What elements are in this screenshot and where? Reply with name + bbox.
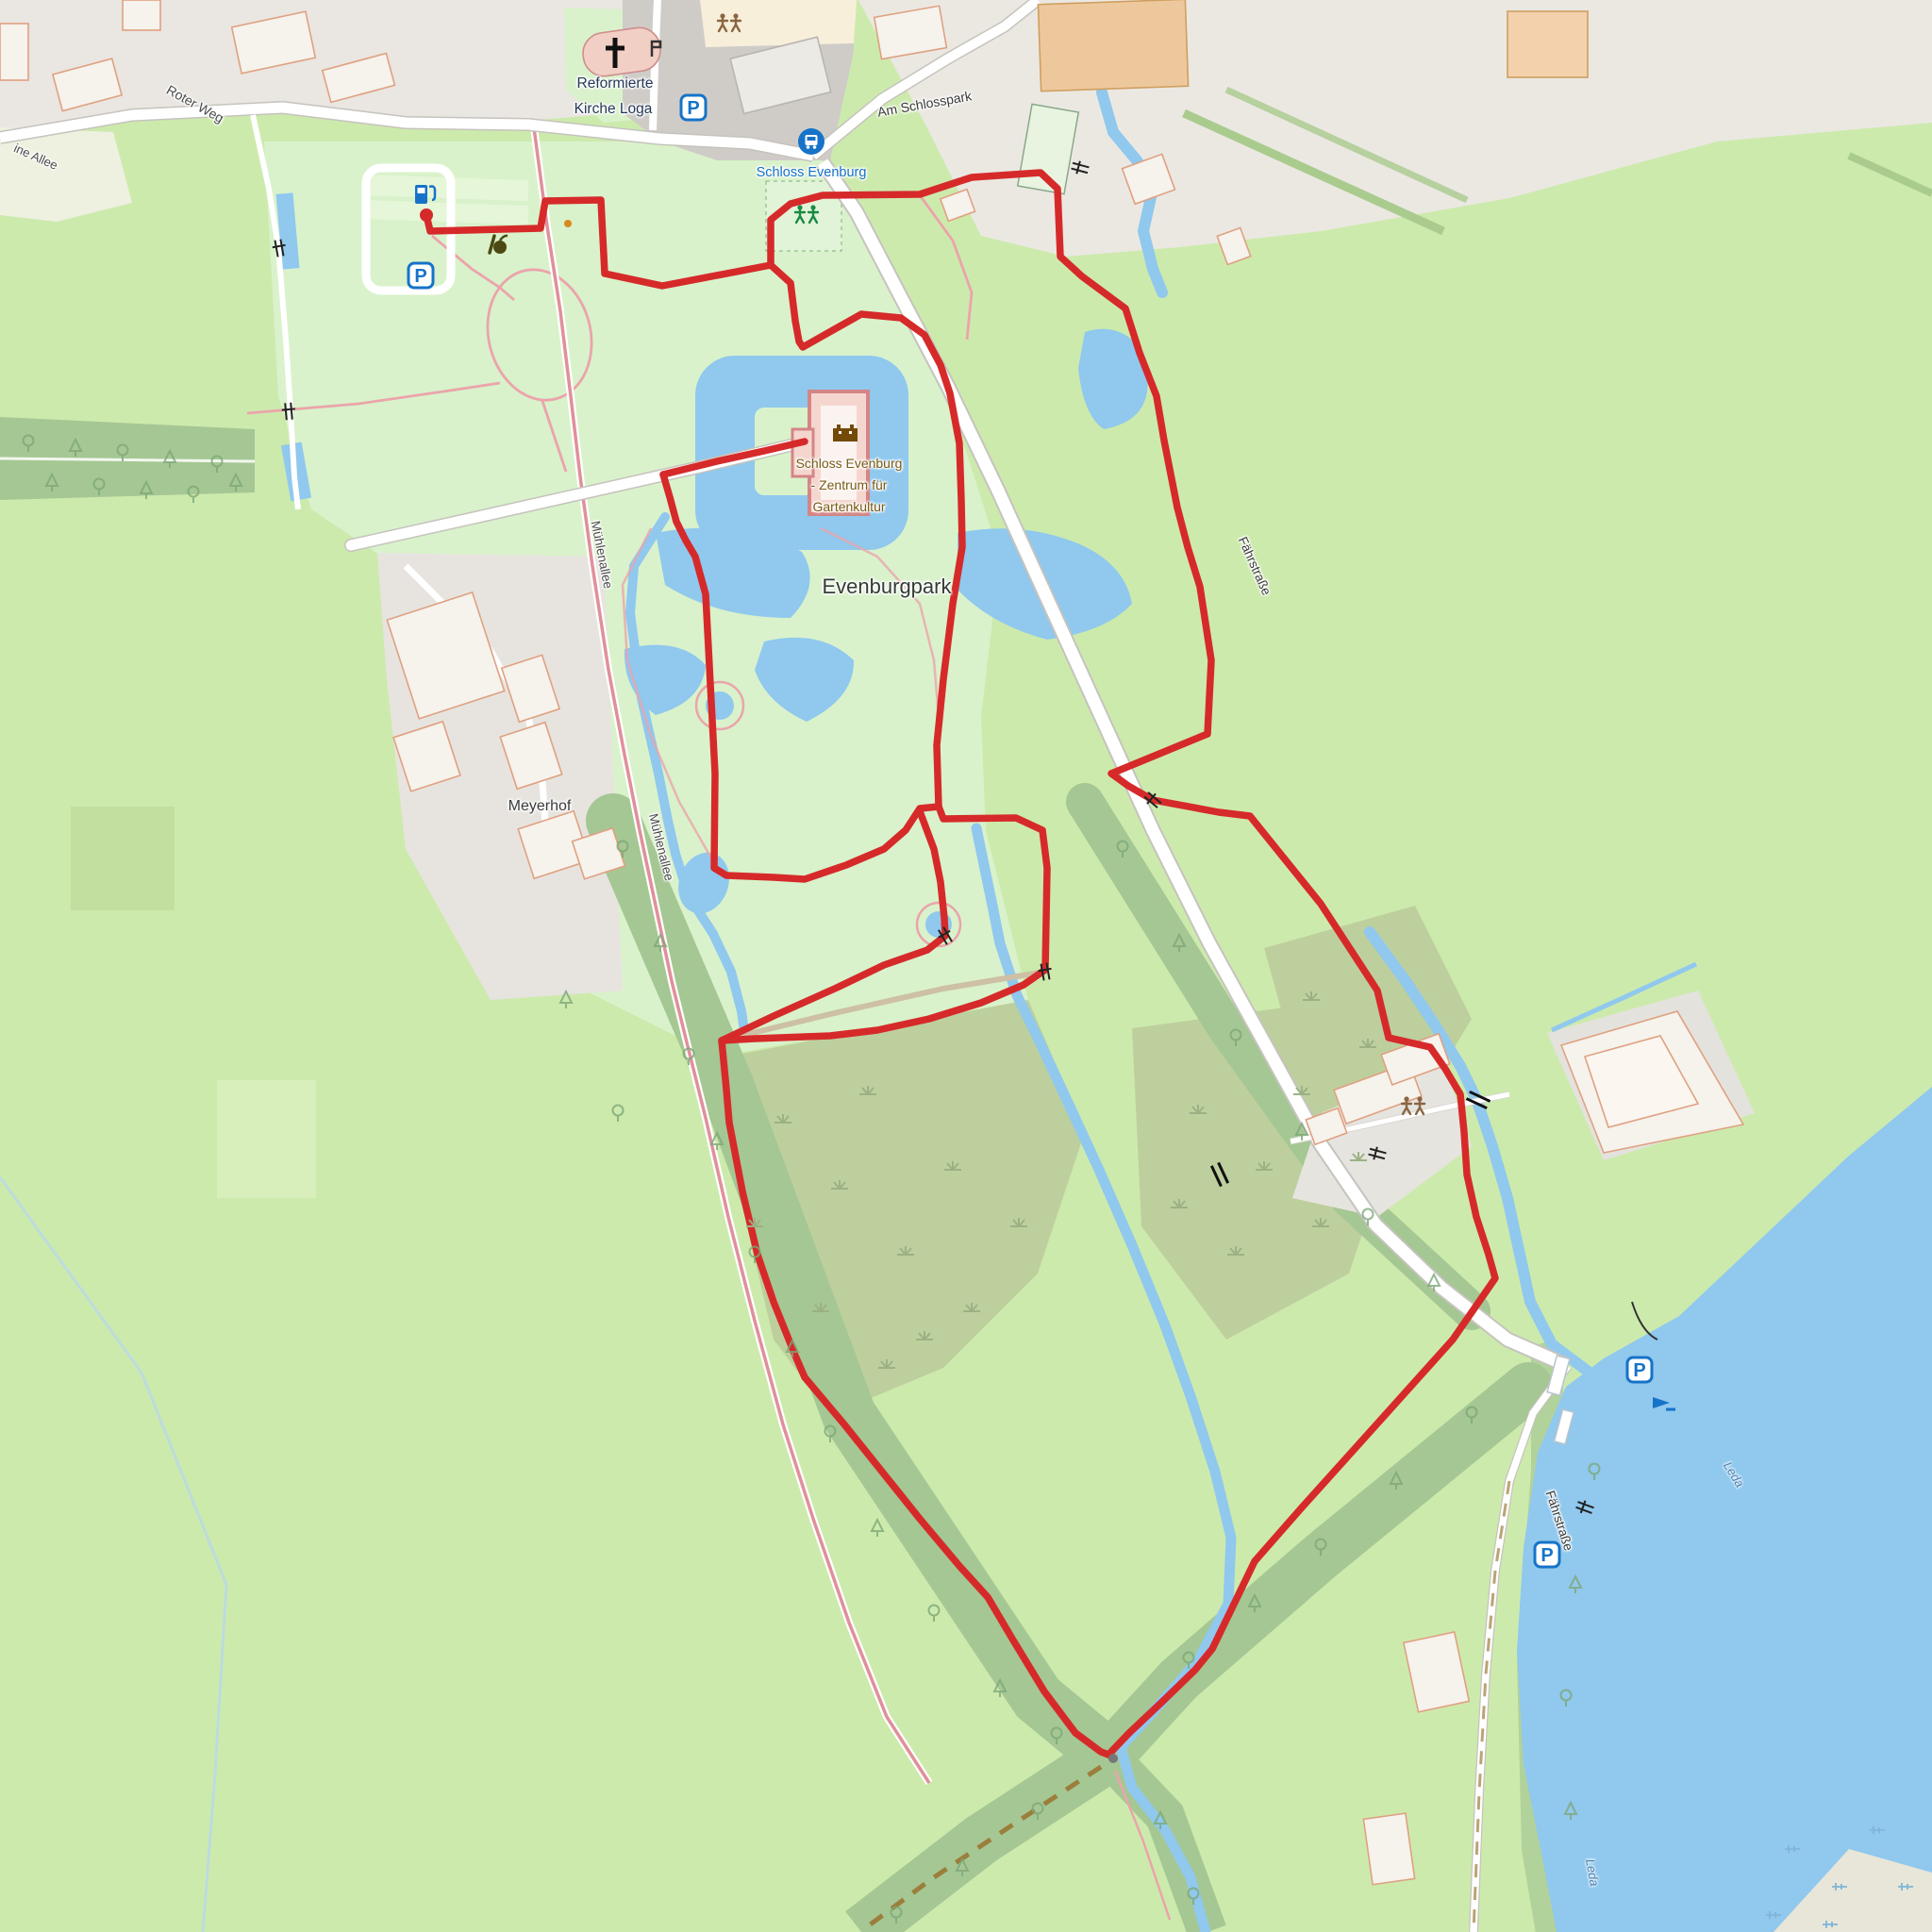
parking-icon: P — [681, 95, 706, 120]
svg-text:P: P — [1633, 1360, 1645, 1381]
map-viewport[interactable]: PPPP Roter Wegine AlleeReformierteKirche… — [0, 0, 1932, 1932]
parking-icon: P — [1535, 1542, 1559, 1567]
parking-icon: P — [1627, 1357, 1652, 1382]
route-end-dot — [1108, 1754, 1118, 1763]
map-canvas: PPPP — [0, 0, 1932, 1932]
route-start-dot — [420, 208, 433, 222]
svg-text:P: P — [1541, 1545, 1553, 1566]
parking-icon: P — [408, 263, 433, 288]
bus-stop-icon — [798, 128, 824, 155]
bench-dot-icon — [564, 220, 572, 227]
svg-text:P: P — [687, 98, 699, 119]
large-building — [1038, 0, 1188, 92]
svg-text:P: P — [414, 266, 426, 287]
